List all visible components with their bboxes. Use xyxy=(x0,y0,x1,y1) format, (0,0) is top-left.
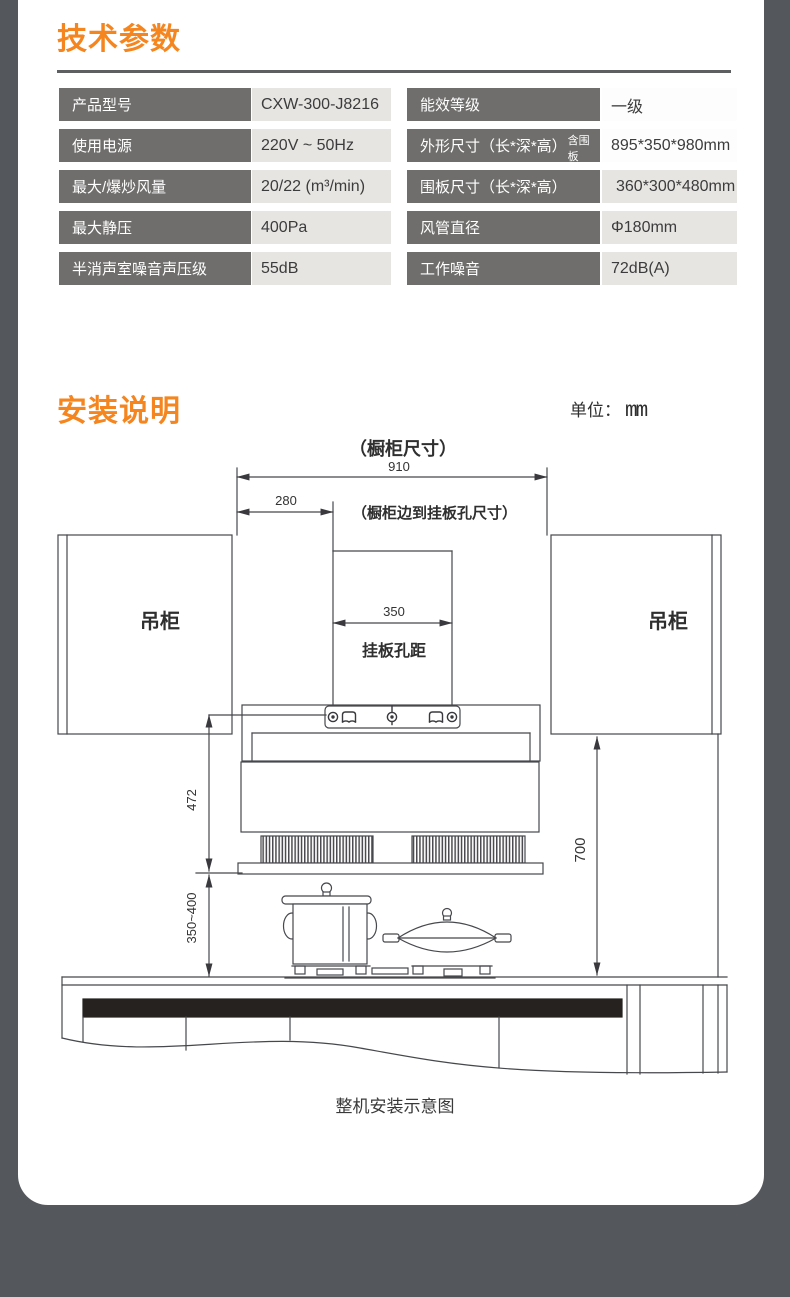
wok-drawing xyxy=(383,909,511,953)
spec-value: Φ180mm xyxy=(602,211,737,244)
unit-label: 单位： xyxy=(570,396,621,421)
spec-label: 工作噪音 xyxy=(407,252,600,285)
edge-to-hole-note: （橱柜边到挂板孔尺寸） xyxy=(352,504,517,522)
spec-label: 最大静压 xyxy=(59,211,251,244)
spec-label: 半消声室噪音声压级 xyxy=(59,252,251,285)
dim-472: 472 xyxy=(184,789,199,811)
spec-label: 使用电源 xyxy=(59,129,251,162)
spec-value: 55dB xyxy=(252,252,391,285)
title-divider xyxy=(57,70,731,73)
dim-280: 280 xyxy=(275,493,297,508)
unit-value: mm xyxy=(625,400,646,423)
product-spec-page: { "page": { "bg": "#54585c", "card_bg": … xyxy=(0,0,790,1297)
cabinet-label-right: 吊柜 xyxy=(648,610,688,633)
diagram-caption: 整机安装示意图 xyxy=(0,1092,790,1117)
spec-label: 最大/爆炒风量 xyxy=(59,170,251,203)
cooktop-drawing xyxy=(285,966,495,978)
unit-indicator: 单位：mm xyxy=(570,396,646,423)
cabinet-label-left: 吊柜 xyxy=(140,610,180,633)
dim-910: 910 xyxy=(388,459,410,474)
stockpot-drawing xyxy=(282,883,377,964)
spec-value: 20/22 (m³/min) xyxy=(252,170,391,203)
tech-section-title: 技术参数 xyxy=(57,14,181,58)
spec-value: 895*350*980mm xyxy=(602,129,737,162)
spec-label: 能效等级 xyxy=(407,88,600,121)
spec-value: 220V ~ 50Hz xyxy=(252,129,391,162)
dim-700: 700 xyxy=(572,837,589,862)
counter-and-base-cabinet xyxy=(62,977,727,1074)
dim-350-400: 350~400 xyxy=(184,893,199,944)
spec-label: 风管直径 xyxy=(407,211,600,244)
spec-value: 400Pa xyxy=(252,211,391,244)
spec-label: 围板尺寸（长*深*高） xyxy=(407,170,600,203)
spec-value: 360*300*480mm xyxy=(602,170,737,203)
install-section-title: 安装说明 xyxy=(57,386,181,430)
spec-value: 72dB(A) xyxy=(602,252,737,285)
hole-pitch-label: 挂板孔距 xyxy=(362,641,426,660)
spec-value: 一级 xyxy=(602,88,737,121)
installation-diagram: （橱柜尺寸） 910 280 （橱柜边到挂板孔尺寸） 吊柜 吊柜 350 挂板孔… xyxy=(0,430,790,1090)
spec-label: 外形尺寸（长*深*高）含围板 xyxy=(407,129,600,162)
cabinet-dim-note: （橱柜尺寸） xyxy=(349,438,457,459)
spec-value: CXW-300-J8216 xyxy=(252,88,391,121)
spec-label: 产品型号 xyxy=(59,88,251,121)
dim-350: 350 xyxy=(383,604,405,619)
